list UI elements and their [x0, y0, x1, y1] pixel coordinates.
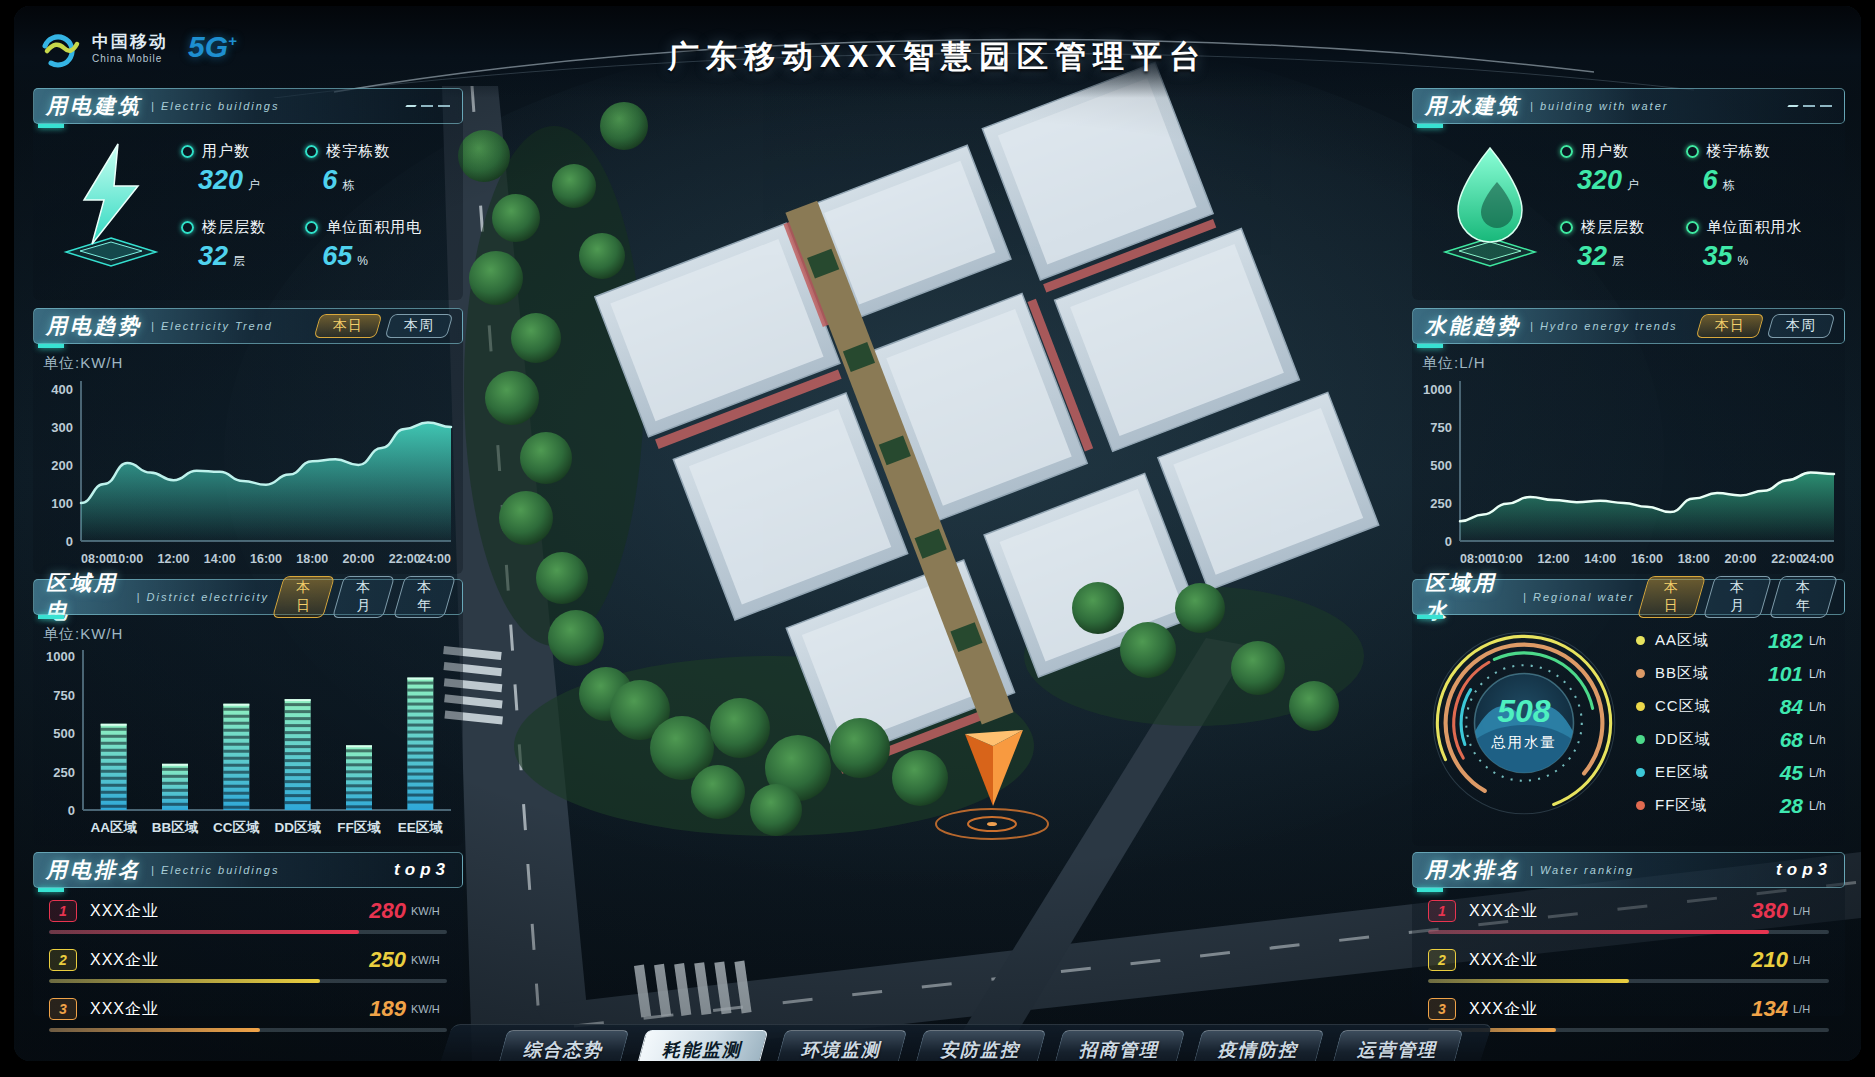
nav-tab-energy-monitor[interactable]: 耗能监测	[636, 1030, 769, 1061]
stat-value: 320	[1577, 165, 1622, 195]
svg-text:FF区域: FF区域	[337, 820, 381, 835]
panel-subtitle: | Regional water	[1523, 591, 1634, 603]
legend-name: FF区域	[1655, 796, 1707, 815]
period-tabs: 本日 本周	[308, 314, 450, 338]
bottom-nav: 综合态势 耗能监测 环境监测 安防监控 招商管理 疫情防控 运营管理	[502, 1030, 1458, 1061]
district-electricity-tab-today[interactable]: 本日	[272, 576, 335, 618]
panel-subtitle: | District electricity	[137, 591, 269, 603]
svg-text:EE区域: EE区域	[398, 820, 444, 835]
electricity-trend-tab-today[interactable]: 本日	[314, 314, 383, 338]
stat-unit-area-electricity: 单位面积用电 65%	[305, 218, 459, 278]
tab-label: 本周	[404, 317, 434, 335]
water-drop-icon	[1420, 138, 1560, 278]
svg-text:10:00: 10:00	[111, 552, 143, 566]
bullet-icon	[1686, 221, 1699, 234]
svg-text:500: 500	[53, 726, 75, 741]
stat-label: 楼宇栋数	[1707, 142, 1771, 161]
tab-label: 本年	[415, 579, 434, 615]
svg-text:22:00: 22:00	[389, 552, 421, 566]
rank-value: 210	[1751, 947, 1788, 973]
rank-progress-track	[1428, 930, 1829, 934]
company-name: XXX企业	[1469, 999, 1538, 1020]
rank-value: 250	[369, 947, 406, 973]
legend-dot-icon	[1636, 669, 1645, 678]
electric-building-stats: 用户数 320户 楼宇栋数 6栋 楼层层数 32层 单位面积用电 65%	[33, 124, 463, 278]
header-decoration	[406, 105, 450, 107]
svg-text:DD区域: DD区域	[274, 820, 321, 835]
company-name: XXX企业	[90, 999, 159, 1020]
hydro-trend-header: 水能趋势 | Hydro energy trends 本日 本周	[1412, 308, 1845, 344]
tab-label: 本日	[333, 317, 363, 335]
period-tabs: 本日 本周	[1690, 314, 1832, 338]
legend-item: EE区域 45 L/h	[1636, 761, 1837, 785]
tab-label: 本年	[1791, 579, 1816, 615]
rank-badge: 1	[49, 900, 77, 922]
svg-text:18:00: 18:00	[1678, 552, 1710, 566]
legend-value: 28	[1780, 794, 1803, 818]
svg-text:10:00: 10:00	[1491, 552, 1523, 566]
panel-regional-water: 区域用水 | Regional water 本日 本月 本年 508 总用水量 …	[1412, 579, 1845, 846]
hydro-trend-tab-week[interactable]: 本周	[1767, 314, 1836, 338]
stat-value: 32	[1577, 241, 1607, 271]
legend-item: DD区域 68 L/h	[1636, 728, 1837, 752]
rank-progress-fill	[49, 1028, 260, 1032]
stat-label: 楼层层数	[1581, 218, 1645, 237]
water-total-gauge: 508 总用水量	[1426, 625, 1622, 821]
rank-progress-track	[49, 979, 447, 983]
stat-value: 32	[198, 241, 228, 271]
nav-tab-epidemic-prevention[interactable]: 疫情防控	[1192, 1030, 1325, 1061]
nav-tab-label: 环境监测	[801, 1038, 881, 1061]
panel-subtitle: | Electric buildings	[151, 864, 279, 876]
rank-badge: 3	[1428, 998, 1456, 1020]
svg-text:12:00: 12:00	[1538, 552, 1570, 566]
chart-unit-label: 单位:KW/H	[43, 354, 463, 373]
svg-text:300: 300	[51, 420, 73, 435]
lightning-icon	[41, 138, 181, 278]
chart-unit-label: 单位:KW/H	[43, 625, 463, 644]
nav-tab-environment-monitor[interactable]: 环境监测	[775, 1030, 908, 1061]
panel-district-electricity: 区域用电 | District electricity 本日 本月 本年 单位:…	[33, 579, 463, 846]
legend-item: CC区域 84 L/h	[1636, 695, 1837, 719]
panel-subtitle: | Electricity Trend	[151, 320, 273, 332]
legend-unit: L/h	[1809, 766, 1837, 780]
bullet-icon	[1686, 145, 1699, 158]
panel-subtitle: | Hydro energy trends	[1530, 320, 1678, 332]
electricity-trend-chart: 010020030040008:0010:0012:0014:0016:0018…	[35, 375, 459, 573]
legend-dot-icon	[1636, 768, 1645, 777]
tab-label: 本周	[1786, 317, 1816, 335]
header: 中国移动 China Mobile 5G+ 广东移动XXX智慧园区管理平台	[14, 6, 1861, 98]
panel-title: 用电排名	[46, 856, 142, 884]
dashboard: 中国移动 China Mobile 5G+ 广东移动XXX智慧园区管理平台 用电…	[0, 0, 1875, 1077]
svg-text:22:00: 22:00	[1771, 552, 1803, 566]
legend-item: FF区域 28 L/h	[1636, 794, 1837, 818]
bullet-icon	[305, 221, 318, 234]
stat-value: 6	[322, 165, 337, 195]
bullet-icon	[1560, 221, 1573, 234]
regional-water-tab-today[interactable]: 本日	[1637, 576, 1706, 618]
legend-unit: L/h	[1809, 700, 1837, 714]
svg-text:0: 0	[1445, 534, 1452, 549]
legend-value: 45	[1780, 761, 1803, 785]
ranking-rows: 1 XXX企业 380 L/H 2 XXX企业 210 L/H 3	[1412, 888, 1845, 1032]
company-name: XXX企业	[1469, 950, 1538, 971]
nav-tab-label: 耗能监测	[662, 1038, 742, 1061]
rank-unit: L/H	[1793, 905, 1829, 917]
panel-subtitle: | Electric buildings	[151, 100, 279, 112]
chart-unit-label: 单位:L/H	[1422, 354, 1845, 373]
legend-item: BB区域 101 L/h	[1636, 662, 1837, 686]
rank-badge: 3	[49, 998, 77, 1020]
stat-label: 楼宇栋数	[326, 142, 390, 161]
rank-badge: 1	[1428, 900, 1456, 922]
water-building-header: 用水建筑 | building with water	[1412, 88, 1845, 124]
panel-title: 区域用电	[46, 569, 128, 625]
svg-text:18:00: 18:00	[296, 552, 328, 566]
svg-text:14:00: 14:00	[204, 552, 236, 566]
tab-label: 本月	[354, 579, 373, 615]
ranking-row: 2 XXX企业 250 KW/H	[49, 947, 447, 983]
legend-value: 68	[1780, 728, 1803, 752]
bullet-icon	[1560, 145, 1573, 158]
panel-title: 区域用水	[1425, 569, 1514, 625]
svg-text:200: 200	[51, 458, 73, 473]
nav-tab-investment-management[interactable]: 招商管理	[1053, 1030, 1186, 1061]
company-name: XXX企业	[90, 901, 159, 922]
stat-value: 35	[1703, 241, 1733, 271]
stat-buildings: 楼宇栋数 6栋	[305, 142, 459, 202]
company-name: XXX企业	[1469, 901, 1538, 922]
panel-title: 用电建筑	[46, 92, 142, 120]
company-name: XXX企业	[90, 950, 159, 971]
rank-unit: L/H	[1793, 954, 1829, 966]
period-tabs: 本日 本月 本年	[1634, 576, 1832, 618]
svg-text:500: 500	[1430, 458, 1452, 473]
stat-unit-area-water: 单位面积用水 35%	[1686, 218, 1841, 278]
district-electricity-tab-month[interactable]: 本月	[332, 576, 395, 618]
svg-text:750: 750	[53, 688, 75, 703]
svg-text:1000: 1000	[1423, 382, 1452, 397]
district-electricity-tab-year[interactable]: 本年	[393, 576, 456, 618]
panel-water-ranking: 用水排名 | Water ranking top3 1 XXX企业 380 L/…	[1412, 852, 1845, 1016]
legend-value: 101	[1768, 662, 1803, 686]
stat-label: 用户数	[1581, 142, 1629, 161]
svg-text:08:00: 08:00	[1460, 552, 1492, 566]
water-ranking-header: 用水排名 | Water ranking top3	[1412, 852, 1845, 888]
bullet-icon	[305, 145, 318, 158]
regional-water-body: 508 总用水量 AA区域 182 L/h BB区域 101 L/h	[1412, 615, 1845, 821]
total-water-value: 508	[1497, 693, 1551, 729]
legend-unit: L/h	[1809, 634, 1837, 648]
stat-value: 6	[1703, 165, 1718, 195]
legend-unit: L/h	[1809, 799, 1837, 813]
nav-tab-label: 安防监控	[940, 1038, 1020, 1061]
stats-grid: 用户数 320户 楼宇栋数 6栋 楼层层数 32层 单位面积用水 35%	[1560, 138, 1841, 278]
svg-text:0: 0	[68, 803, 75, 818]
rank-value: 189	[369, 996, 406, 1022]
stat-unit: 层	[233, 254, 245, 268]
legend-value: 84	[1780, 695, 1803, 719]
panel-title: 水能趋势	[1425, 312, 1521, 340]
period-tabs: 本日 本月 本年	[269, 576, 450, 618]
electric-ranking-header: 用电排名 | Electric buildings top3	[33, 852, 463, 888]
legend-unit: L/h	[1809, 667, 1837, 681]
ranking-row: 3 XXX企业 189 KW/H	[49, 996, 447, 1032]
district-electricity-chart: 02505007501000AA区域BB区域CC区域DD区域FF区域EE区域	[35, 646, 459, 846]
rank-progress-track	[1428, 979, 1829, 983]
nav-tab-label: 运营管理	[1357, 1038, 1437, 1061]
stat-value: 320	[198, 165, 243, 195]
svg-text:20:00: 20:00	[1725, 552, 1757, 566]
svg-text:250: 250	[1430, 496, 1452, 511]
panel-electric-ranking: 用电排名 | Electric buildings top3 1 XXX企业 2…	[33, 852, 463, 1016]
stat-value: 65	[322, 241, 352, 271]
svg-text:0: 0	[66, 534, 73, 549]
svg-text:16:00: 16:00	[1631, 552, 1663, 566]
panel-electric-building: 用电建筑 | Electric buildings 用户数 320户	[33, 88, 463, 300]
stat-label: 单位面积用电	[326, 218, 422, 237]
svg-text:AA区域: AA区域	[90, 820, 137, 835]
svg-text:100: 100	[51, 496, 73, 511]
rank-progress-fill	[49, 979, 320, 983]
svg-text:CC区域: CC区域	[213, 820, 260, 835]
panel-hydro-trend: 水能趋势 | Hydro energy trends 本日 本周 单位:L/H …	[1412, 308, 1845, 574]
stat-unit: 栋	[342, 178, 354, 192]
panel-water-building: 用水建筑 | building with water 用户数 320户	[1412, 88, 1845, 300]
stats-grid: 用户数 320户 楼宇栋数 6栋 楼层层数 32层 单位面积用电 65%	[181, 138, 459, 278]
legend-dot-icon	[1636, 801, 1645, 810]
rank-unit: KW/H	[411, 954, 447, 966]
panel-subtitle: | Water ranking	[1530, 864, 1634, 876]
rank-progress-track	[49, 930, 447, 934]
rank-badge: 2	[49, 949, 77, 971]
rank-unit: KW/H	[411, 905, 447, 917]
ranking-row: 2 XXX企业 210 L/H	[1428, 947, 1829, 983]
stat-buildings: 楼宇栋数 6栋	[1686, 142, 1841, 202]
stat-unit: %	[1738, 254, 1749, 268]
panel-electricity-trend: 用电趋势 | Electricity Trend 本日 本周 单位:KW/H 0…	[33, 308, 463, 574]
regional-water-tab-month[interactable]: 本月	[1703, 576, 1772, 618]
stat-unit: %	[357, 254, 368, 268]
nav-tab-security-monitor[interactable]: 安防监控	[914, 1030, 1047, 1061]
nav-tab-label: 疫情防控	[1218, 1038, 1298, 1061]
svg-text:1000: 1000	[46, 649, 75, 664]
legend-name: BB区域	[1655, 664, 1709, 683]
rank-progress-track	[49, 1028, 447, 1032]
svg-text:24:00: 24:00	[419, 552, 451, 566]
svg-text:750: 750	[1430, 420, 1452, 435]
tab-label: 本月	[1725, 579, 1750, 615]
rank-unit: KW/H	[411, 1003, 447, 1015]
legend-unit: L/h	[1809, 733, 1837, 747]
svg-text:24:00: 24:00	[1802, 552, 1834, 566]
stat-users: 用户数 320户	[181, 142, 305, 202]
panel-title: 用电趋势	[46, 312, 142, 340]
stat-floors: 楼层层数 32层	[1560, 218, 1686, 278]
ranking-rows: 1 XXX企业 280 KW/H 2 XXX企业 250 KW/H 3	[33, 888, 463, 1032]
rank-progress-fill	[1428, 979, 1629, 983]
legend-name: CC区域	[1655, 697, 1711, 716]
stat-label: 楼层层数	[202, 218, 266, 237]
legend-value: 182	[1768, 629, 1803, 653]
ranking-row: 1 XXX企业 380 L/H	[1428, 898, 1829, 934]
legend-dot-icon	[1636, 735, 1645, 744]
stat-users: 用户数 320户	[1560, 142, 1686, 202]
svg-text:400: 400	[51, 382, 73, 397]
rank-value: 134	[1751, 996, 1788, 1022]
stat-unit: 栋	[1723, 178, 1735, 192]
svg-text:08:00: 08:00	[81, 552, 113, 566]
page-title: 广东移动XXX智慧园区管理平台	[14, 36, 1861, 78]
rank-unit: L/H	[1793, 1003, 1829, 1015]
total-water-label: 总用水量	[1491, 734, 1557, 750]
scene-frame: 中国移动 China Mobile 5G+ 广东移动XXX智慧园区管理平台 用电…	[14, 6, 1861, 1061]
svg-text:20:00: 20:00	[343, 552, 375, 566]
hydro-trend-tab-today[interactable]: 本日	[1696, 314, 1765, 338]
svg-text:14:00: 14:00	[1584, 552, 1616, 566]
nav-tab-overview[interactable]: 综合态势	[497, 1030, 630, 1061]
svg-text:16:00: 16:00	[250, 552, 282, 566]
water-building-stats: 用户数 320户 楼宇栋数 6栋 楼层层数 32层 单位面积用水 35%	[1412, 124, 1845, 278]
bullet-icon	[181, 145, 194, 158]
stat-unit: 层	[1612, 254, 1624, 268]
bullet-icon	[181, 221, 194, 234]
electric-building-header: 用电建筑 | Electric buildings	[33, 88, 463, 124]
tab-label: 本日	[294, 579, 313, 615]
svg-text:BB区域: BB区域	[152, 820, 199, 835]
regional-water-tab-year[interactable]: 本年	[1769, 576, 1838, 618]
panel-subtitle: | building with water	[1530, 100, 1668, 112]
legend-dot-icon	[1636, 702, 1645, 711]
electricity-trend-tab-week[interactable]: 本周	[385, 314, 454, 338]
panel-title: 用水建筑	[1425, 92, 1521, 120]
tab-label: 本日	[1659, 579, 1684, 615]
header-decoration	[1788, 105, 1832, 107]
stat-label: 用户数	[202, 142, 250, 161]
nav-tab-label: 招商管理	[1079, 1038, 1159, 1061]
nav-tab-operations-management[interactable]: 运营管理	[1331, 1030, 1464, 1061]
hydro-trend-chart: 0250500750100008:0010:0012:0014:0016:001…	[1414, 375, 1842, 573]
nav-tab-label: 综合态势	[523, 1038, 603, 1061]
legend-name: EE区域	[1655, 763, 1709, 782]
svg-text:12:00: 12:00	[158, 552, 190, 566]
stat-floors: 楼层层数 32层	[181, 218, 305, 278]
legend-name: AA区域	[1655, 631, 1709, 650]
regional-water-header: 区域用水 | Regional water 本日 本月 本年	[1412, 579, 1845, 615]
district-electricity-header: 区域用电 | District electricity 本日 本月 本年	[33, 579, 463, 615]
rank-progress-fill	[1428, 930, 1769, 934]
stat-unit: 户	[248, 178, 260, 192]
svg-text:250: 250	[53, 765, 75, 780]
legend-item: AA区域 182 L/h	[1636, 629, 1837, 653]
water-legend: AA区域 182 L/h BB区域 101 L/h CC区域 84 L/h	[1622, 629, 1837, 818]
ranking-row: 1 XXX企业 280 KW/H	[49, 898, 447, 934]
rank-badge: 2	[1428, 949, 1456, 971]
top3-badge: top3	[394, 860, 450, 880]
tab-label: 本日	[1715, 317, 1745, 335]
legend-name: DD区域	[1655, 730, 1711, 749]
stat-label: 单位面积用水	[1707, 218, 1803, 237]
rank-value: 380	[1751, 898, 1788, 924]
panel-title: 用水排名	[1425, 856, 1521, 884]
electricity-trend-header: 用电趋势 | Electricity Trend 本日 本周	[33, 308, 463, 344]
stat-unit: 户	[1627, 178, 1639, 192]
rank-progress-fill	[49, 930, 359, 934]
top3-badge: top3	[1776, 860, 1832, 880]
legend-dot-icon	[1636, 636, 1645, 645]
rank-value: 280	[369, 898, 406, 924]
